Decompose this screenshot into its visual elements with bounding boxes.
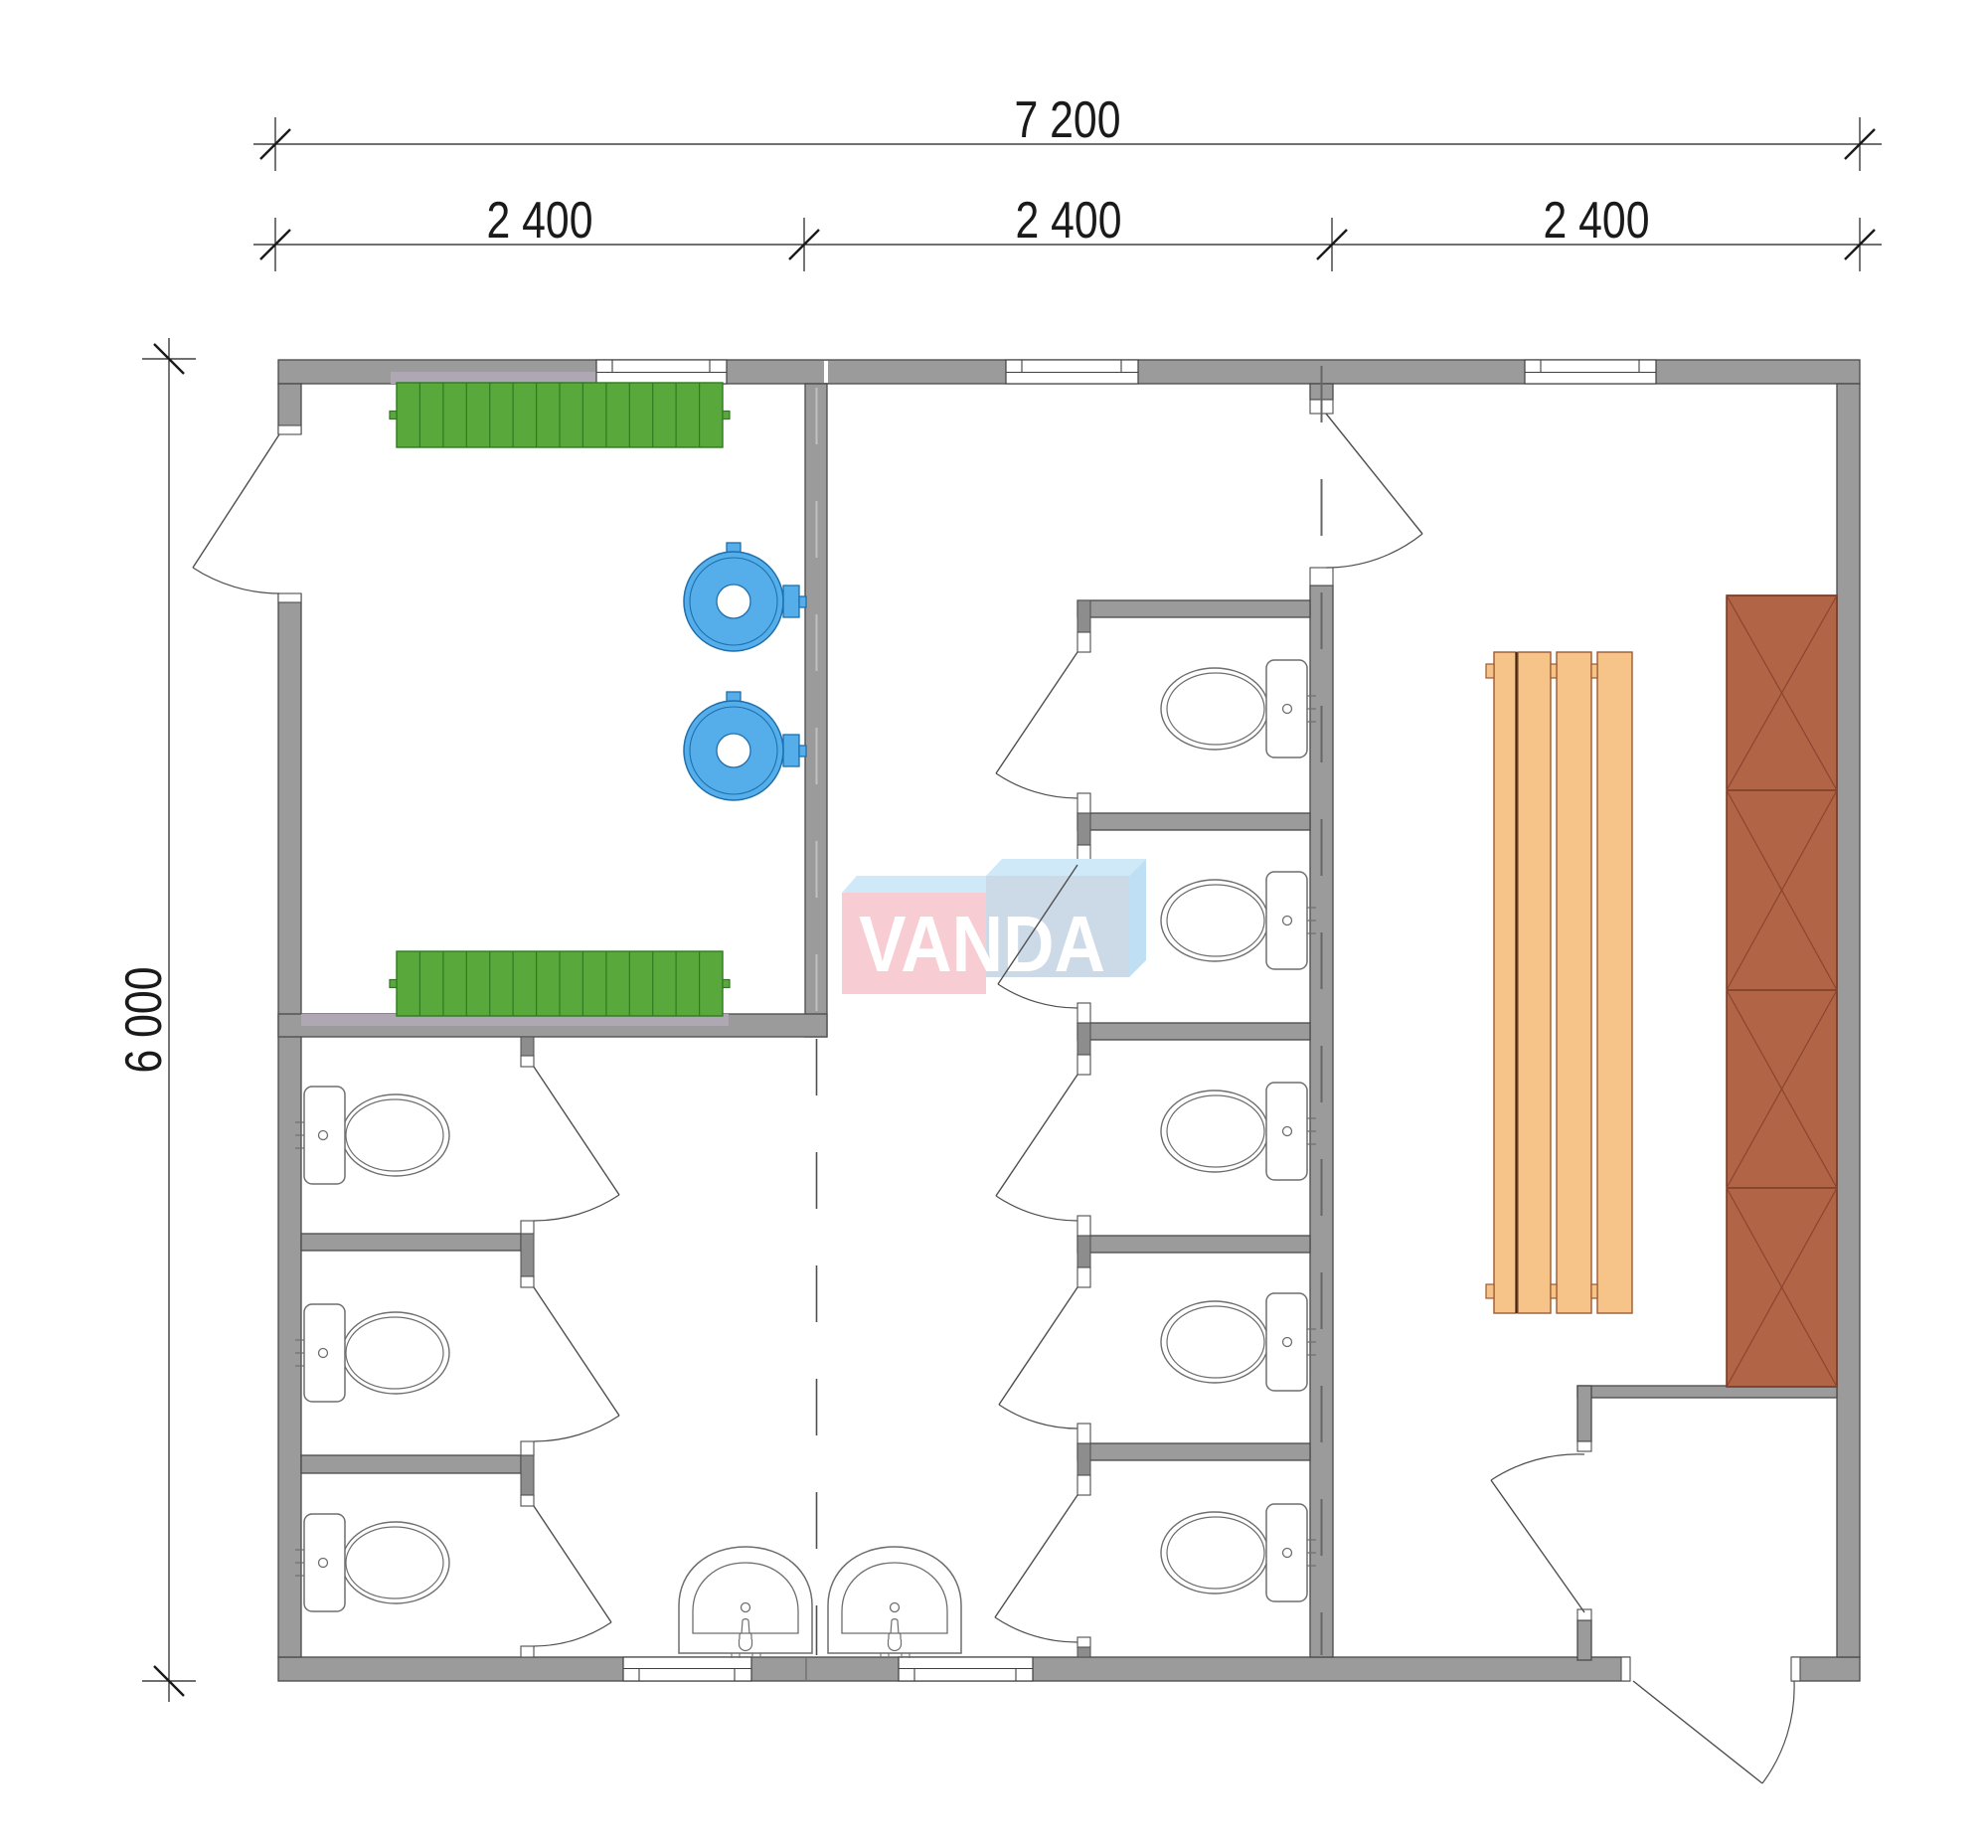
svg-text:2 400: 2 400 — [1544, 192, 1650, 250]
svg-text:VANDA: VANDA — [859, 900, 1105, 988]
svg-text:6 000: 6 000 — [115, 967, 173, 1074]
svg-text:2 400: 2 400 — [1016, 192, 1122, 250]
svg-text:7 200: 7 200 — [1015, 91, 1121, 149]
svg-text:2 400: 2 400 — [487, 192, 593, 250]
